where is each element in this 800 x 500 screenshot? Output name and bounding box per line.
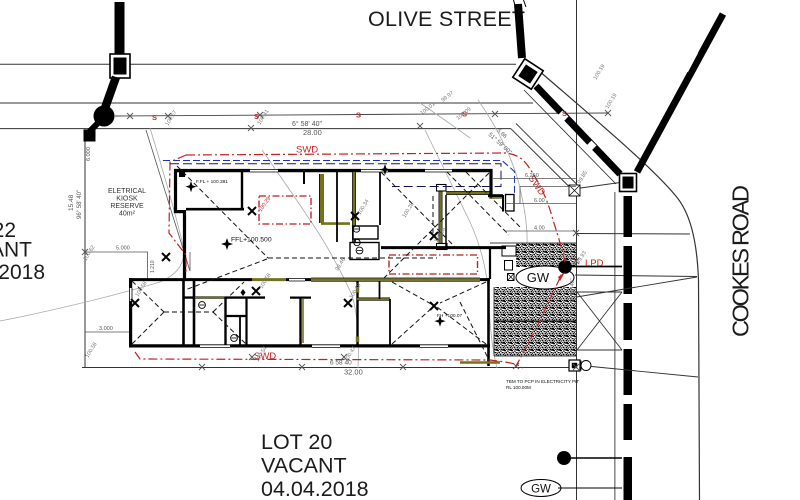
svg-text:SWD: SWD [296,145,318,156]
svg-text:0° 58' 40": 0° 58' 40" [570,278,576,302]
svg-text:4.00: 4.00 [534,226,545,232]
svg-text:VACANT: VACANT [0,239,32,262]
svg-text:6.00: 6.00 [534,198,545,204]
svg-text:04.04.2018: 04.04.2018 [0,261,45,284]
svg-text:6.250: 6.250 [525,173,539,179]
svg-text:GW: GW [527,270,550,285]
svg-text:OLIVE STREET: OLIVE STREET [368,7,525,31]
svg-text:S: S [356,111,361,120]
svg-text:1.210: 1.210 [150,260,156,273]
svg-text:5.000: 5.000 [116,246,130,252]
svg-text:40m²: 40m² [119,211,136,218]
svg-text:FFL+100.500: FFL+100.500 [231,237,272,244]
svg-text:3.000: 3.000 [99,326,113,332]
svg-text:F.FL + 100.381: F.FL + 100.381 [196,179,228,185]
svg-text:32.00: 32.00 [344,368,363,377]
svg-text:RESERVE: RESERVE [110,203,144,210]
svg-text:LPD: LPD [585,258,604,269]
svg-text:04.04.2018: 04.04.2018 [261,477,369,500]
svg-text:GW: GW [531,484,551,496]
svg-text:COOKES ROAD: COOKES ROAD [728,185,754,337]
svg-text:S: S [562,109,567,118]
svg-text:LOT 20: LOT 20 [261,430,332,454]
svg-text:15.48: 15.48 [68,194,75,211]
svg-text:96° 58' 40": 96° 58' 40" [77,190,83,219]
svg-text:KIOSK: KIOSK [116,196,138,203]
svg-text:VACANT: VACANT [261,454,347,478]
svg-text:6° 58' 40": 6° 58' 40" [292,120,322,128]
svg-text:6.000: 6.000 [86,147,92,161]
svg-text:ELETRICAL: ELETRICAL [108,188,146,195]
svg-text:RL 100.00M: RL 100.00M [506,385,531,390]
svg-text:S: S [152,113,157,122]
svg-text:28.00: 28.00 [303,128,322,137]
svg-text:TBM TO PCP IN ELECTRICITY PIT: TBM TO PCP IN ELECTRICITY PIT [506,379,579,384]
